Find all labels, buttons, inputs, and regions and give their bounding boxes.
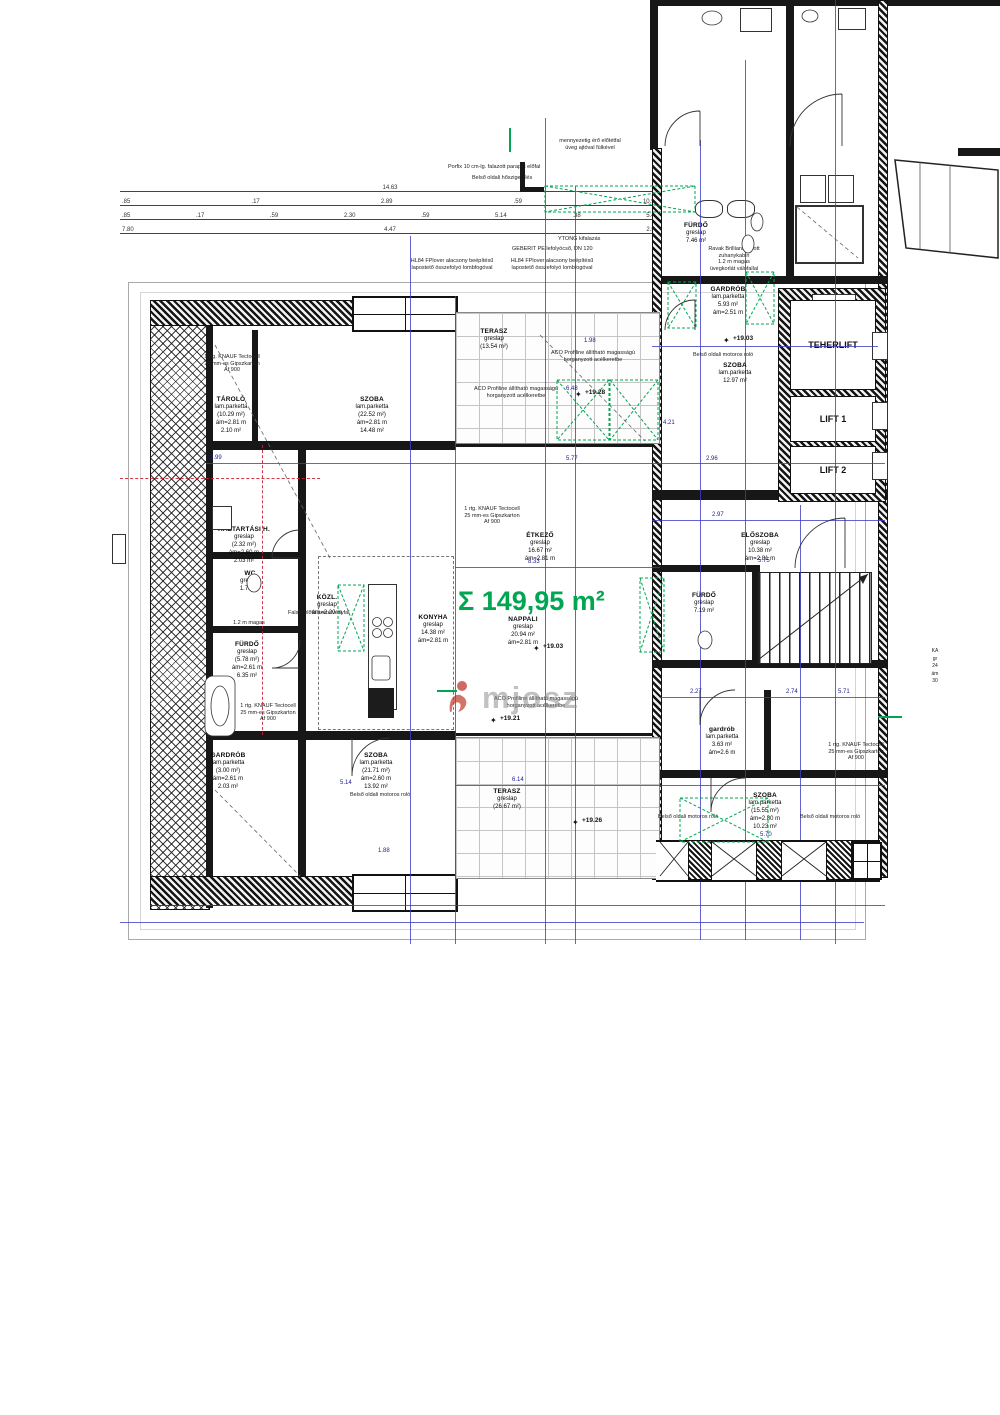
window-x: [782, 842, 826, 876]
toilet: [742, 235, 754, 253]
stove-burner: [384, 629, 393, 638]
washbasin: [802, 10, 818, 22]
toilet: [751, 213, 763, 231]
toilet: [698, 631, 712, 649]
slope-line: [797, 207, 858, 258]
bathtub-basin: [211, 686, 229, 726]
window-x: [660, 842, 688, 876]
toilet: [247, 574, 261, 592]
door-arc: [272, 640, 300, 668]
roof-slope-lines: [215, 207, 858, 876]
plan-overlay: [0, 0, 1000, 950]
door-arc: [272, 530, 300, 558]
washbasin: [702, 11, 722, 25]
door-swing-group: [272, 94, 845, 812]
slope-line: [540, 335, 645, 441]
stove-burner: [373, 629, 382, 638]
stair-landing: [758, 160, 998, 660]
slope-line: [215, 790, 300, 876]
stair-direction-line: [758, 574, 868, 660]
door-arc: [711, 778, 745, 812]
roof-window-group: [338, 128, 902, 842]
slope-line: [215, 345, 330, 558]
door-arc: [352, 738, 390, 776]
window-x: [712, 842, 756, 876]
stove-burner: [384, 618, 393, 627]
stair-arrow: [859, 574, 868, 584]
kitchen-sink: [372, 656, 390, 680]
landing-outline: [895, 160, 998, 258]
floor-plan-sheet: 14.63 .85.172.89.5910.98 .85.17.592.30.5…: [0, 0, 1000, 1415]
roof-window: [680, 798, 768, 842]
door-arc: [665, 111, 700, 146]
door-arc: [700, 690, 735, 725]
window-x-group: [660, 842, 826, 876]
door-arc: [795, 518, 845, 568]
fixtures-group: [205, 10, 818, 736]
stove-burner: [373, 618, 382, 627]
door-arc: [790, 94, 842, 146]
